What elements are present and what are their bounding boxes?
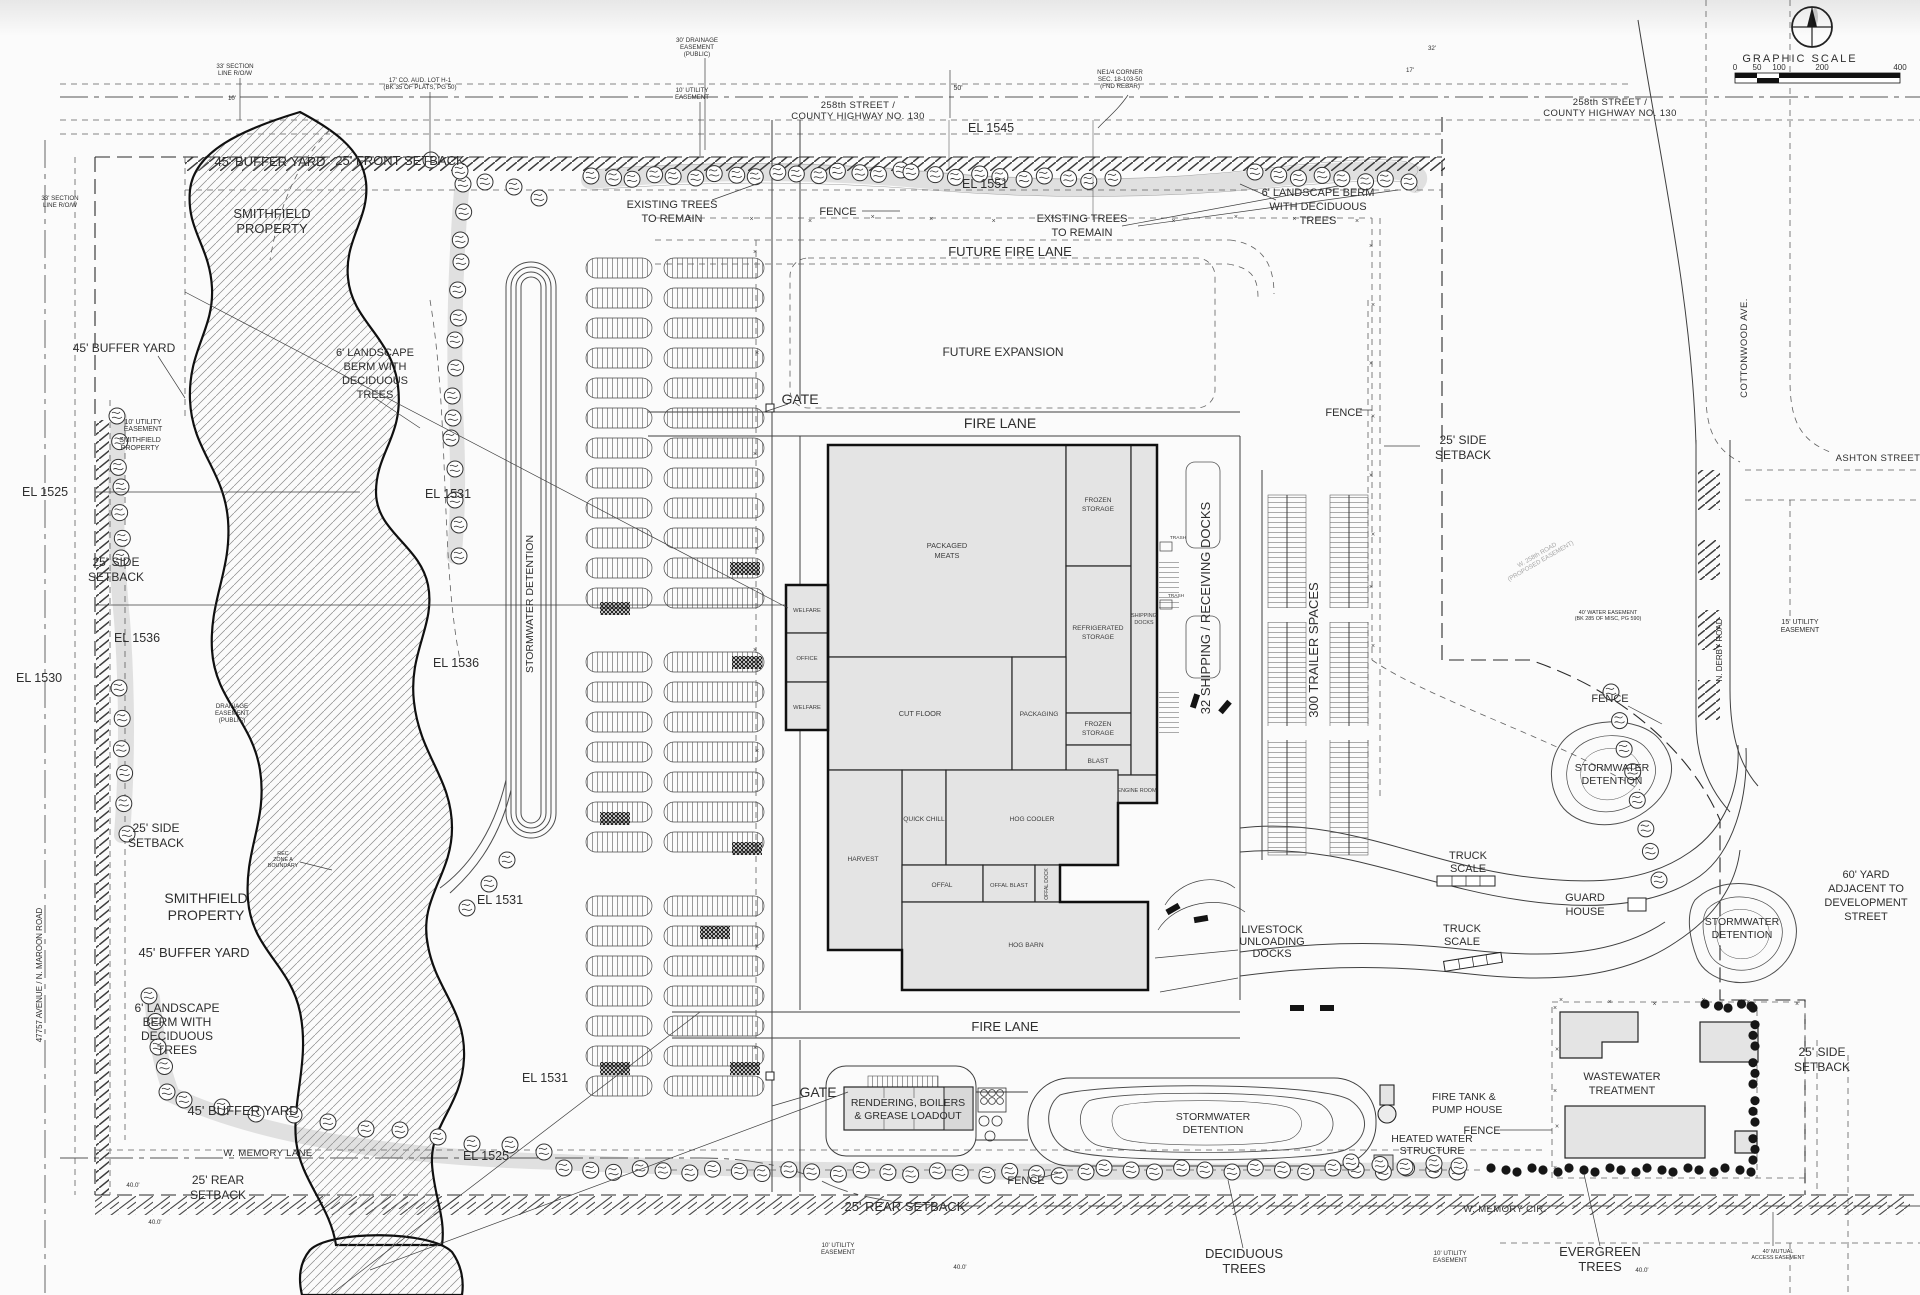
north-arrow (1792, 7, 1832, 47)
top-gradient-band (0, 0, 1920, 36)
buffer-yard-45-bottom: 45' BUFFER YARD (187, 1103, 298, 1118)
svg-text:×: × (1608, 999, 1612, 1006)
berm-sw: 6' LANDSCAPE (135, 1001, 220, 1015)
avenue-47757-label: 47757 AVENUE / N. MAROON ROAD (35, 908, 44, 1043)
room-cut-floor: CUT FLOOR (899, 709, 942, 718)
fence-label-south: FENCE (1007, 1175, 1044, 1187)
svg-text:×: × (1292, 216, 1296, 223)
livestock-unloading-label: DOCKS (1252, 948, 1291, 960)
ne-corner-note: SEC. 18-103-50 (1098, 76, 1143, 83)
site-plan-drawing: ×××××××××××× ×××××××× ××××××××× ××××× ××… (0, 0, 1920, 1295)
scale-tick: 400 (1893, 63, 1907, 72)
evergreen-trees-label: TREES (1578, 1259, 1622, 1274)
dim-17: 17' (1406, 67, 1414, 74)
parking-rows (664, 652, 764, 852)
smithfield-property-small: SMITHFIELD (119, 437, 161, 444)
utility-easement-note-west: 10' UTILITY (124, 419, 161, 426)
water-40-note: (BK 285 OF MISC, PG 590) (1575, 616, 1642, 622)
svg-text:×: × (753, 249, 757, 256)
heated-water-label: STRUCTURE (1400, 1145, 1465, 1157)
rear-setback-25-sw: 25' REAR (192, 1173, 245, 1187)
room-quick-chill: QUICK CHILL (903, 816, 945, 823)
stormwater-pond-south-label: STORMWATER (1176, 1111, 1251, 1123)
elevation-1531-sw2: EL 1531 (477, 893, 523, 907)
dim-32: 32' (1428, 45, 1436, 52)
gate-symbol-bottom (766, 1072, 774, 1080)
svg-text:×: × (1369, 243, 1373, 250)
wastewater-label: TREATMENT (1589, 1085, 1656, 1097)
utility-10-note-s1: EASEMENT (821, 1249, 855, 1256)
trash-label-1: TRASH (1170, 535, 1187, 541)
cottonwood-ave-label: COTTONWOOD AVE. (1739, 298, 1750, 398)
rendering-label: & GREASE LOADOUT (854, 1110, 962, 1122)
trailer-spaces-label: 300 TRAILER SPACES (1306, 582, 1321, 718)
svg-text:×: × (808, 218, 812, 225)
utility-15-note: EASEMENT (1781, 627, 1820, 634)
stormwater-pond-b-label: DETENTION (1712, 929, 1773, 941)
section-line-note: LINE R/O/W (218, 70, 252, 77)
room-frozen-storage-2: FROZEN (1084, 721, 1111, 728)
svg-text:×: × (871, 214, 875, 221)
buffer-yard-45-sw: 45' BUFFER YARD (138, 945, 249, 960)
plant-building (786, 445, 1157, 990)
livestock-unloading-label: LIVESTOCK (1241, 924, 1303, 936)
elevation-1551: EL 1551 (962, 177, 1008, 191)
dim-40: 40.0' (126, 1182, 139, 1189)
side-setback-25-west: SETBACK (88, 570, 144, 584)
future-fire-lane-label: FUTURE FIRE LANE (948, 244, 1072, 259)
room-hog-barn: HOG BARN (1008, 942, 1043, 949)
ne-corner-note: (FND REBAR) (1100, 83, 1140, 90)
existing-trees-east: TO REMAIN (1052, 227, 1113, 239)
existing-trees-west: EXISTING TREES (627, 199, 718, 211)
room-hog-cooler: HOG COOLER (1010, 816, 1055, 823)
svg-text:×: × (753, 647, 757, 654)
room-frozen-storage: FROZEN (1084, 497, 1111, 504)
truck-scale-1: TRUCK (1449, 850, 1488, 862)
scale-tick: 50 (1753, 63, 1762, 72)
elevation-1536-mid: EL 1536 (433, 656, 479, 670)
smithfield-property-top: SMITHFIELD (233, 206, 310, 221)
fire-lane-label-bottom: FIRE LANE (971, 1019, 1039, 1034)
future-expansion-label: FUTURE EXPANSION (942, 345, 1063, 359)
elevation-1531-sw: EL 1531 (522, 1071, 568, 1085)
svg-text:×: × (755, 748, 759, 755)
yard-60-label: STREET (1844, 911, 1888, 923)
room-frozen-storage: STORAGE (1082, 506, 1115, 513)
buffer-yard-45-top: 45' BUFFER YARD (214, 154, 325, 169)
heated-water-label: HEATED WATER (1391, 1133, 1473, 1145)
scale-tick: 200 (1815, 63, 1829, 72)
room-offal: OFFAL (932, 882, 953, 889)
smithfield-property-top: PROPERTY (236, 221, 308, 236)
room-welfare-2: WELFARE (793, 705, 821, 711)
utility-10-note-s2: 10' UTILITY (1434, 1250, 1467, 1257)
existing-trees-west: TO REMAIN (642, 213, 703, 225)
fence-label-east: FENCE (1325, 407, 1362, 419)
rear-setback-25-south: 25' REAR SETBACK (845, 1199, 966, 1214)
room-blast: BLAST (1088, 758, 1109, 765)
drainage-easement-public: EASEMENT (215, 710, 249, 717)
scale-tick: 0 (1733, 63, 1738, 72)
trash-label-2: TRASH (1168, 593, 1185, 599)
utility-easement-note-west: EASEMENT (124, 426, 163, 433)
utility-15-note: 15' UTILITY (1781, 619, 1818, 626)
svg-text:×: × (749, 216, 753, 223)
section-line-note-west: LINE R/O/W (43, 202, 77, 209)
berm-west: DECIDUOUS (342, 375, 408, 387)
elevation-1530: EL 1530 (16, 671, 62, 685)
room-packaging: PACKAGING (1020, 711, 1059, 718)
side-setback-25-ne: SETBACK (1435, 448, 1491, 462)
room-shipping-docks: SHIPPING (1131, 613, 1157, 619)
dim-10: 10' (228, 95, 236, 102)
svg-text:×: × (1653, 1001, 1657, 1008)
front-setback-25: 25' FRONT SETBACK (335, 153, 465, 168)
room-offal-dock: OFFAL DOCK (1044, 868, 1050, 900)
fire-tank-label: FIRE TANK & (1432, 1091, 1496, 1103)
yard-60-label: ADJACENT TO (1828, 883, 1904, 895)
svg-text:×: × (1553, 1005, 1557, 1012)
svg-text:×: × (1371, 643, 1375, 650)
berm-west: BERM WITH (344, 361, 407, 373)
yard-60-label: DEVELOPMENT (1824, 897, 1907, 909)
w-memory-cir-label: W. MEMORY CIR. (1463, 1204, 1546, 1215)
street-258-label-east: 258th STREET / (1573, 97, 1648, 108)
guard-house-label: HOUSE (1565, 906, 1604, 918)
svg-text:×: × (755, 944, 759, 951)
room-office: OFFICE (796, 656, 817, 662)
n-derby-road-label: N. DERBY ROAD (1715, 618, 1724, 681)
fence-label-top: FENCE (819, 206, 856, 218)
svg-text:×: × (929, 216, 933, 223)
stormwater-pond-b-label: STORMWATER (1705, 916, 1780, 928)
truck-scale-1: SCALE (1450, 863, 1486, 875)
building-rooms (786, 445, 1157, 990)
aud-lot-note: 17' CO. AUD. LOT H-1 (389, 77, 452, 84)
livestock-unloading-label: UNLOADING (1239, 936, 1304, 948)
shipping-receiving-docks-label: 32 SHIPPING / RECEIVING DOCKS (1198, 501, 1213, 714)
gate-label-top: GATE (781, 391, 818, 407)
elevation-1531-mid: EL 1531 (425, 487, 471, 501)
drainage-easement-note: EASEMENT (680, 44, 714, 51)
side-setback-25-sw: 25' SIDE (133, 821, 180, 835)
drainage-easement-note: (PUBLIC) (684, 51, 710, 58)
dim-40-s: 40.0' (1635, 1267, 1648, 1274)
section-line-note-west: 33' SECTION (41, 195, 78, 202)
stormwater-pond-south-label: DETENTION (1183, 1124, 1244, 1136)
drainage-easement-public: DRAINAGE (216, 703, 248, 710)
svg-text:×: × (753, 1045, 757, 1052)
scale-bar (1735, 73, 1900, 83)
deciduous-trees-label: TREES (1222, 1261, 1266, 1276)
rec-zone-note: BOUNDARY (268, 863, 299, 869)
dim-40: 40.0' (148, 1219, 161, 1226)
berm-sw: TREES (157, 1043, 197, 1057)
svg-text:×: × (1371, 302, 1375, 309)
rear-setback-25-sw: SETBACK (190, 1188, 246, 1202)
svg-text:×: × (992, 218, 996, 225)
side-setback-25-west: 25' SIDE (93, 555, 140, 569)
wastewater-label: WASTEWATER (1583, 1071, 1660, 1083)
elevation-1536-west: EL 1536 (114, 631, 160, 645)
svg-text:×: × (1795, 1001, 1799, 1008)
elevation-1545: EL 1545 (968, 121, 1014, 135)
svg-text:×: × (1369, 472, 1373, 479)
side-setback-25-ne: 25' SIDE (1440, 433, 1487, 447)
berm-west: TREES (357, 389, 394, 401)
utility-10-note-s2: EASEMENT (1433, 1257, 1467, 1264)
dim-40-s: 40.0' (953, 1264, 966, 1271)
dim-50: 50' (953, 85, 962, 92)
evergreen-trees-label: EVERGREEN (1559, 1244, 1641, 1259)
room-harvest: HARVEST (847, 856, 878, 863)
room-shipping-docks: DOCKS (1134, 620, 1154, 626)
svg-text:×: × (1553, 1088, 1557, 1095)
smithfield-property-sw: SMITHFIELD (164, 890, 247, 906)
smithfield-property-small: PROPERTY (121, 445, 160, 452)
svg-text:×: × (1234, 214, 1238, 221)
rendering-label: RENDERING, BOILERS (851, 1097, 965, 1109)
yard-60-label: 60' YARD (1843, 869, 1890, 881)
section-line-note: 33' SECTION (216, 63, 253, 70)
utility-easement-note-top: EASEMENT (675, 94, 709, 101)
ashton-street-label: ASHTON STREET (1836, 453, 1920, 464)
side-setback-25-sw: SETBACK (128, 836, 184, 850)
fire-lane-label-top: FIRE LANE (964, 415, 1036, 431)
berm-sw: BERM WITH (143, 1015, 212, 1029)
stormwater-detention-west-label: STORMWATER DETENTION (524, 535, 536, 673)
berm-top-east: 6' LANDSCAPE BERM (1262, 187, 1375, 199)
fire-tank-pump-house (1378, 1085, 1396, 1123)
room-packaged-meats: PACKAGED (927, 541, 968, 550)
gate-label-bottom: GATE (799, 1084, 836, 1100)
street-258-label: COUNTY HIGHWAY NO. 130 (791, 111, 925, 122)
elevation-1525-bottom: EL 1525 (463, 1149, 509, 1163)
buffer-yard-45-west: 45' BUFFER YARD (73, 341, 176, 355)
elevation-1525-west: EL 1525 (22, 485, 68, 499)
ne-corner-note: NE1/4 CORNER (1097, 69, 1143, 76)
scale-tick: 100 (1772, 63, 1786, 72)
stormwater-pond-a-label: DETENTION (1582, 775, 1643, 787)
stormwater-pond-a-label: STORMWATER (1575, 762, 1650, 774)
svg-text:×: × (1559, 997, 1563, 1004)
svg-text:×: × (1371, 531, 1375, 538)
room-refrigerated-storage: STORAGE (1082, 634, 1115, 641)
guard-house-building (1628, 898, 1646, 911)
mutual-access-note: ACCESS EASEMENT (1751, 1255, 1805, 1261)
utility-10-note-s1: 10' UTILITY (822, 1242, 855, 1249)
aud-lot-note: (BK 35 OF PLATS, PG 50) (383, 84, 456, 91)
svg-text:×: × (1555, 1047, 1559, 1054)
smithfield-property-sw: PROPERTY (168, 907, 245, 923)
room-refrigerated-storage: REFRIGERATED (1072, 625, 1123, 632)
svg-text:×: × (753, 451, 757, 458)
street-258-label: 258th STREET / (821, 100, 896, 111)
svg-text:×: × (1371, 414, 1375, 421)
room-packaged-meats: MEATS (935, 551, 960, 560)
existing-trees-east: EXISTING TREES (1037, 213, 1128, 225)
room-frozen-storage-2: STORAGE (1082, 730, 1115, 737)
berm-west: 6' LANDSCAPE (336, 347, 414, 359)
room-engine-room: ENGINE ROOM (1118, 788, 1157, 794)
street-258-label-east: COUNTY HIGHWAY NO. 130 (1543, 108, 1677, 119)
deciduous-trees-label: DECIDUOUS (1205, 1246, 1283, 1261)
fire-tank-label: PUMP HOUSE (1432, 1104, 1502, 1116)
svg-text:×: × (755, 546, 759, 553)
berm-sw: DECIDUOUS (141, 1029, 213, 1043)
w-memory-lane-label: W. MEMORY LANE (223, 1148, 312, 1159)
drainage-easement-note: 30' DRAINAGE (676, 37, 718, 44)
svg-text:×: × (1369, 361, 1373, 368)
truck-scale-2: SCALE (1444, 936, 1480, 948)
fence-label-se: FENCE (1591, 693, 1628, 705)
svg-text:×: × (1369, 584, 1373, 591)
utility-easement-note-top: 10' UTILITY (676, 87, 709, 94)
room-welfare-1: WELFARE (793, 608, 821, 614)
svg-text:×: × (755, 350, 759, 357)
guard-house-label: GUARD (1565, 892, 1605, 904)
svg-text:×: × (1555, 1124, 1559, 1131)
berm-top-east: WITH DECIDUOUS (1269, 201, 1366, 213)
side-setback-25-se: SETBACK (1794, 1060, 1850, 1074)
room-offal-blast: OFFAL BLAST (990, 883, 1029, 889)
truck-scale-2: TRUCK (1443, 923, 1482, 935)
svg-text:×: × (1355, 218, 1359, 225)
berm-top-east: TREES (1300, 215, 1337, 227)
drainage-easement-public: (PUBLIC) (219, 717, 245, 724)
side-setback-25-se: 25' SIDE (1799, 1045, 1846, 1059)
site-plan-sheet: ×××××××××××× ×××××××× ××××××××× ××××× ××… (0, 0, 1920, 1295)
svg-text:×: × (753, 843, 757, 850)
